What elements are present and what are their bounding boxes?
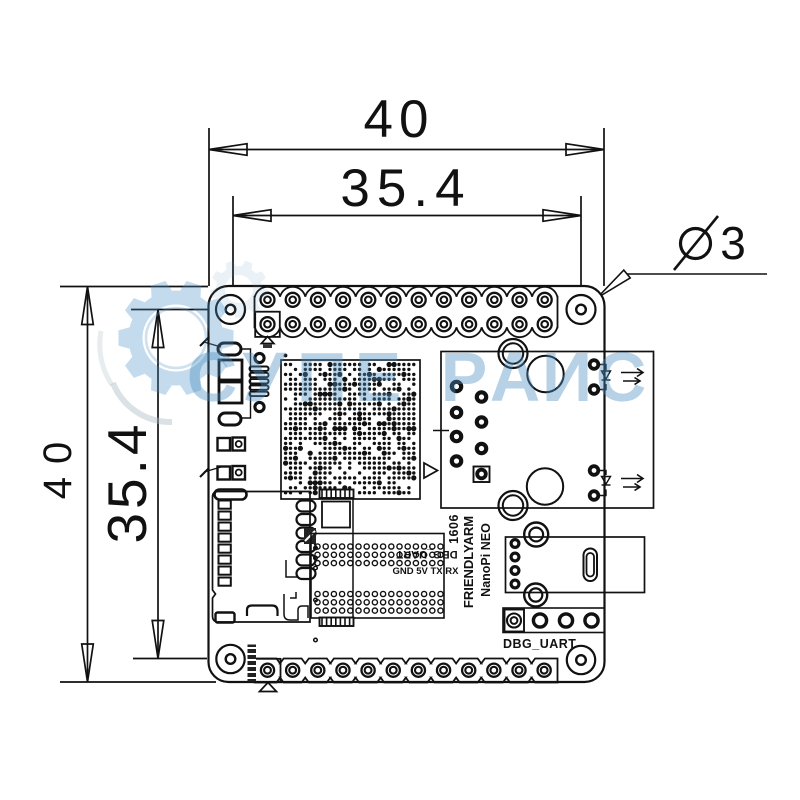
svg-text:1606: 1606 <box>447 514 461 544</box>
svg-text:35.4: 35.4 <box>96 420 158 543</box>
svg-text:NanoPi NEO: NanoPi NEO <box>479 523 493 597</box>
svg-text:DBG_UART: DBG_UART <box>396 548 457 560</box>
svg-text:3: 3 <box>720 217 746 269</box>
svg-text:FRIENDLYARM: FRIENDLYARM <box>461 516 476 608</box>
svg-text:40: 40 <box>36 429 80 500</box>
svg-text:DBG_UART: DBG_UART <box>503 637 576 651</box>
svg-text:40: 40 <box>364 90 435 149</box>
svg-text:35.4: 35.4 <box>340 159 471 218</box>
svg-text:GND 5V TX RX: GND 5V TX RX <box>393 566 460 577</box>
